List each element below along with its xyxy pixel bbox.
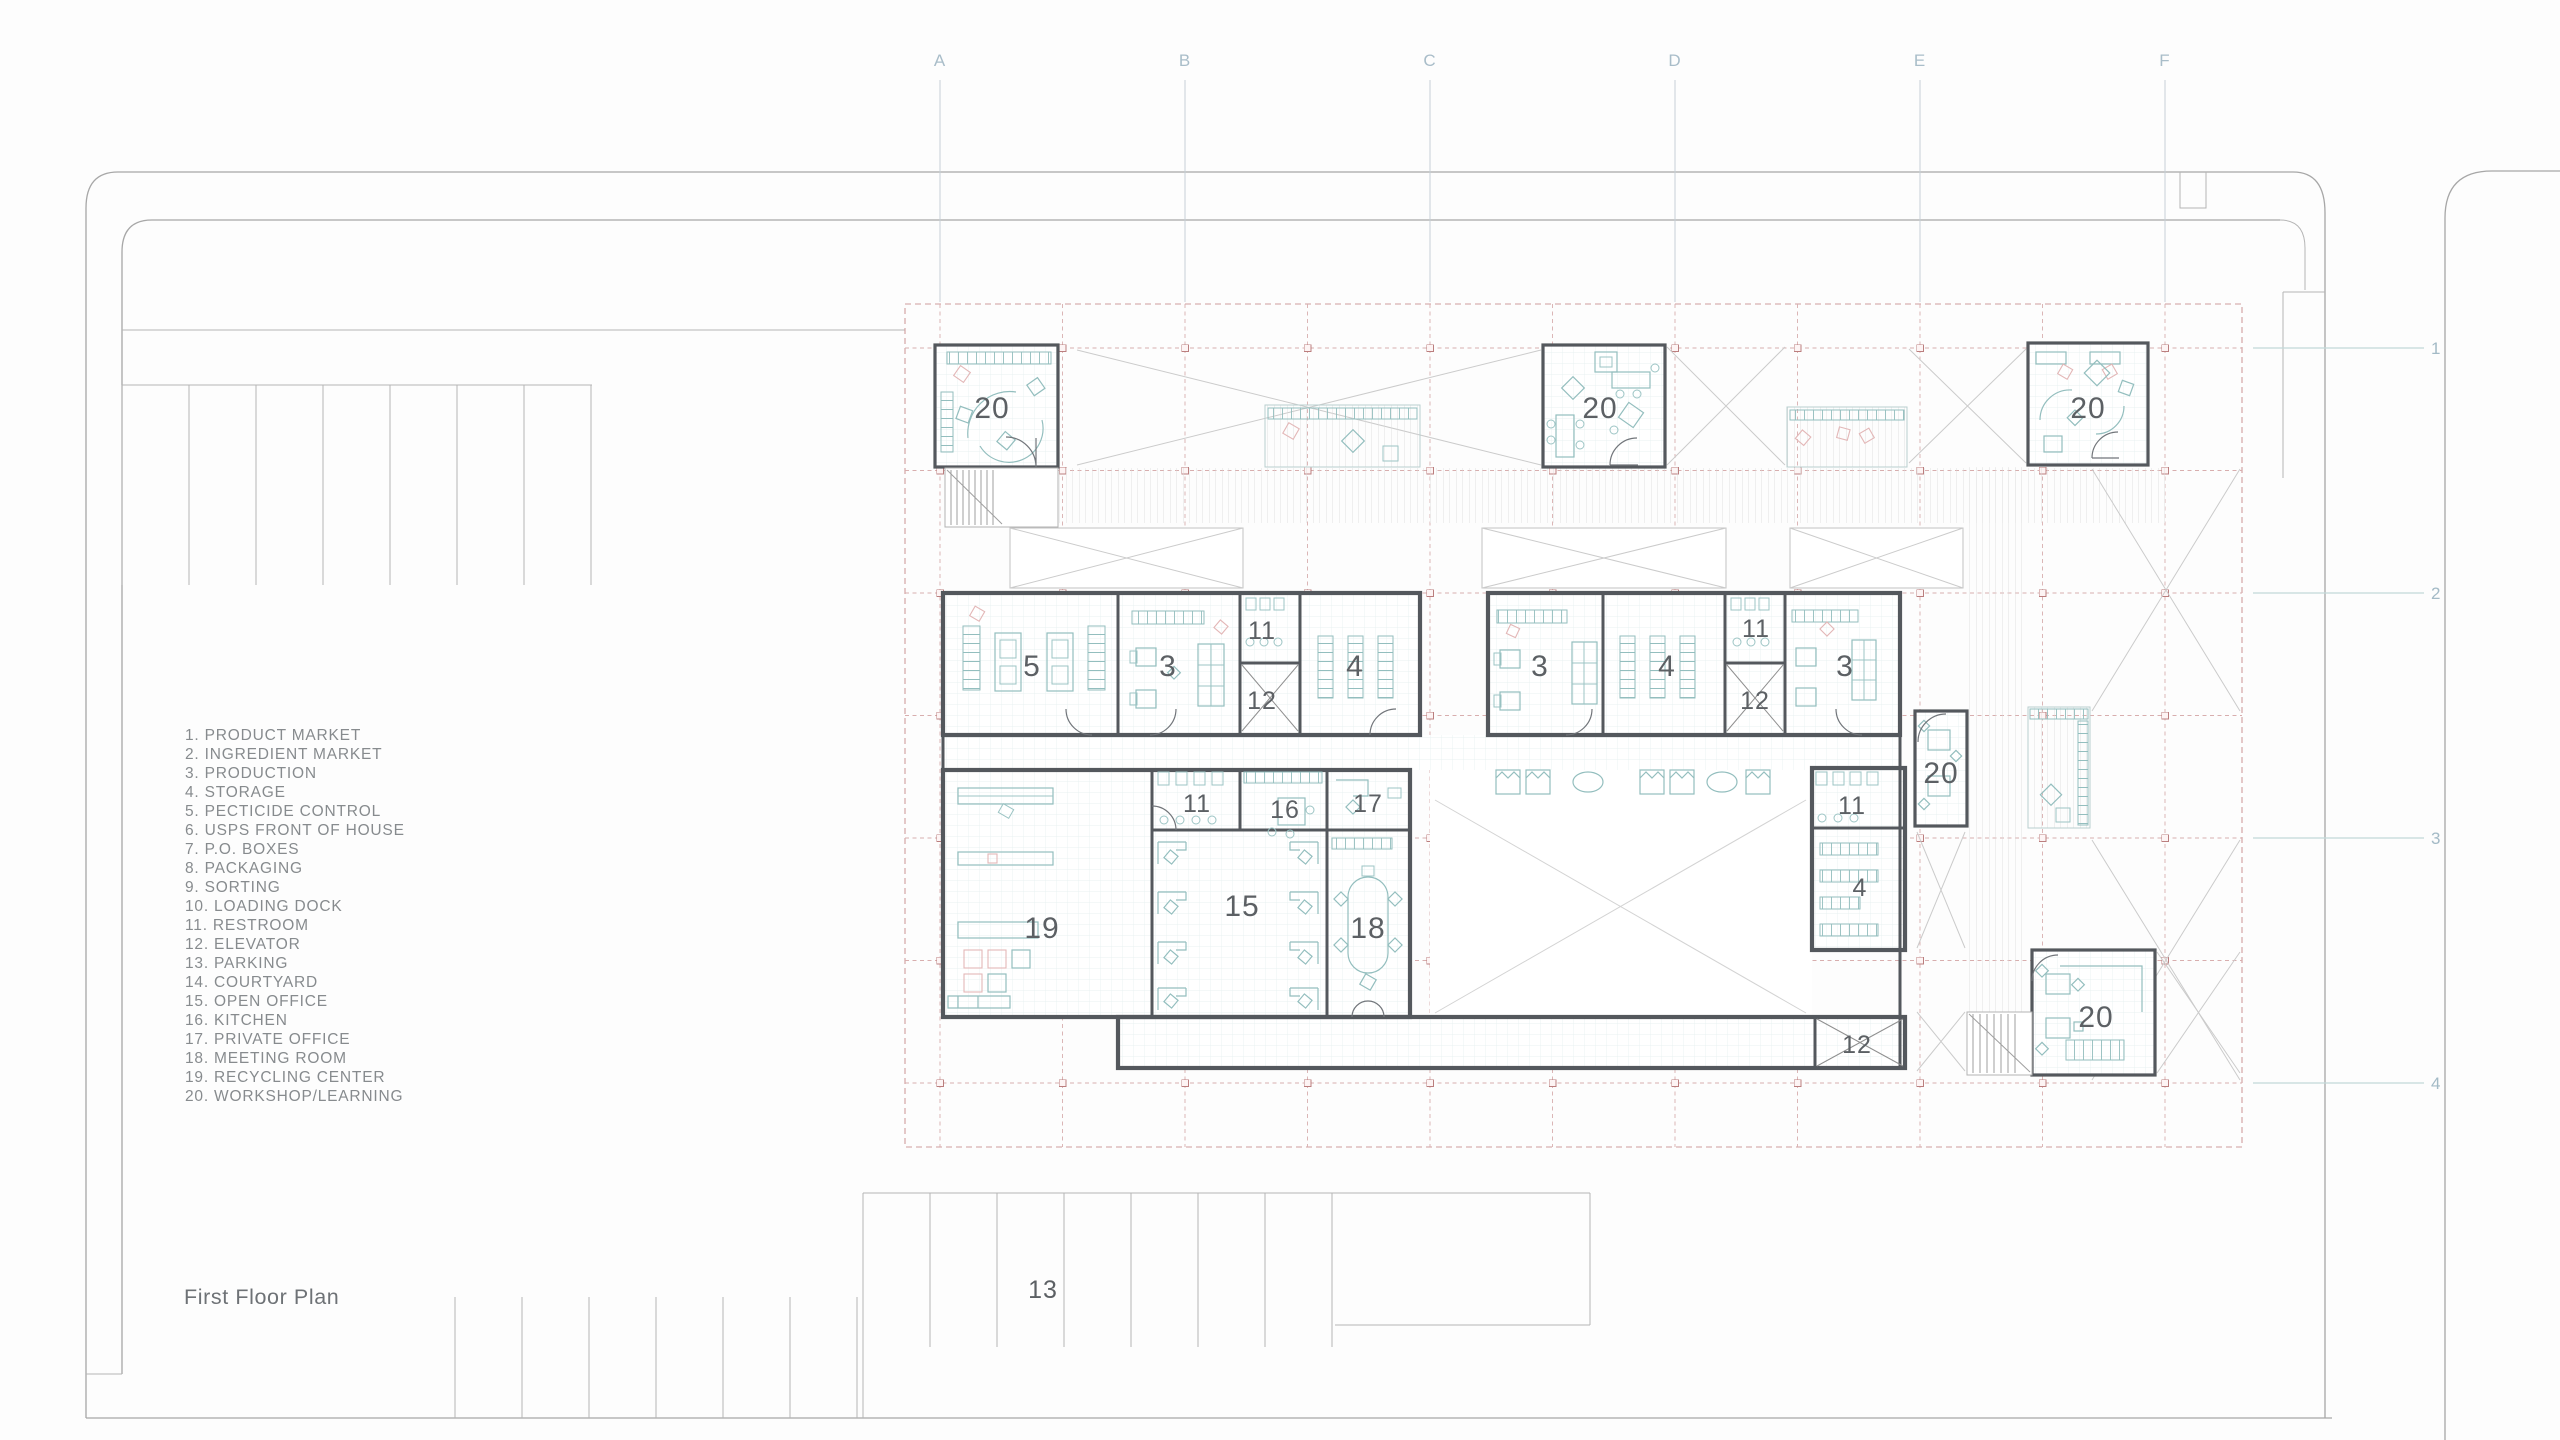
legend-item: 15. OPEN OFFICE xyxy=(185,993,328,1010)
parking-lot-bottom xyxy=(455,1193,1590,1418)
room-label: 20 xyxy=(2078,1001,2113,1034)
room-label: 11 xyxy=(1183,790,1211,818)
legend-item: 9. SORTING xyxy=(185,879,281,896)
room-label: 3 xyxy=(1836,650,1854,683)
legend-item: 6. USPS FRONT OF HOUSE xyxy=(185,822,405,839)
grid-row-label: 2 xyxy=(2431,584,2441,603)
room-label: 3 xyxy=(1531,650,1549,683)
legend-item: 11. RESTROOM xyxy=(185,917,309,934)
room-label: 11 xyxy=(1742,615,1770,643)
legend: 1. PRODUCT MARKET 2. INGREDIENT MARKET 3… xyxy=(185,727,405,1105)
legend-item: 13. PARKING xyxy=(185,955,288,972)
room-label: 17 xyxy=(1353,790,1383,818)
legend-item: 20. WORKSHOP/LEARNING xyxy=(185,1088,403,1105)
legend-item: 19. RECYCLING CENTER xyxy=(185,1069,385,1086)
room-label: 18 xyxy=(1350,912,1385,945)
parking-label: 13 xyxy=(1028,1276,1058,1304)
grid-row-label: 3 xyxy=(2431,829,2441,848)
room-label: 5 xyxy=(1023,650,1041,683)
grid-row-label: 1 xyxy=(2431,339,2441,358)
grid-col-label: B xyxy=(1179,51,1191,70)
room-label: 4 xyxy=(1346,650,1364,683)
stair-bottom-right xyxy=(1967,1012,2032,1075)
room-label: 20 xyxy=(1582,392,1617,425)
legend-item: 14. COURTYARD xyxy=(185,974,318,991)
courtyard xyxy=(1430,768,1812,1017)
room-label: 12 xyxy=(1842,1031,1872,1059)
room-label: 19 xyxy=(1024,912,1059,945)
legend-item: 7. P.O. BOXES xyxy=(185,841,299,858)
legend-item: 4. STORAGE xyxy=(185,784,286,801)
legend-item: 18. MEETING ROOM xyxy=(185,1050,347,1067)
grid-column-labels: A B C D E F xyxy=(934,51,2171,70)
grid-col-label: E xyxy=(1914,51,1926,70)
legend-item: 3. PRODUCTION xyxy=(185,765,317,782)
sheet-title: First Floor Plan xyxy=(184,1285,339,1309)
legend-item: 17. PRIVATE OFFICE xyxy=(185,1031,350,1048)
floor-plan-sheet: A B C D E F 1 2 3 4 20 20 20 20 20 5 3 1… xyxy=(0,0,2560,1440)
room-label: 12 xyxy=(1247,687,1277,715)
legend-item: 2. INGREDIENT MARKET xyxy=(185,746,382,763)
grid-col-label: D xyxy=(1668,51,1681,70)
room-label: 15 xyxy=(1224,890,1259,923)
grid-column-stems xyxy=(940,80,2165,302)
room-label: 12 xyxy=(1740,687,1770,715)
room-label: 11 xyxy=(1838,792,1866,820)
grid-col-label: A xyxy=(934,51,946,70)
legend-item: 1. PRODUCT MARKET xyxy=(185,727,361,744)
legend-item: 16. KITCHEN xyxy=(185,1012,288,1029)
legend-item: 8. PACKAGING xyxy=(185,860,303,877)
market-stall-platform-east xyxy=(2028,707,2090,828)
legend-item: 5. PECTICIDE CONTROL xyxy=(185,803,381,820)
room-label: 4 xyxy=(1658,650,1676,683)
market-stall-platform-top-right xyxy=(1787,407,1907,467)
room-label: 11 xyxy=(1248,617,1276,645)
grid-col-label: F xyxy=(2159,51,2170,70)
grid-row-labels: 1 2 3 4 xyxy=(2431,339,2441,1093)
legend-item: 10. LOADING DOCK xyxy=(185,898,343,915)
plan-drawing: A B C D E F 1 2 3 4 20 20 20 20 20 5 3 1… xyxy=(0,0,2560,1440)
room-label: 20 xyxy=(974,392,1009,425)
grid-row-label: 4 xyxy=(2431,1074,2441,1093)
grid-row-leaders xyxy=(2253,348,2424,1083)
parking-lot-top-left xyxy=(122,385,592,585)
legend-item: 12. ELEVATOR xyxy=(185,936,301,953)
room-label: 3 xyxy=(1159,650,1177,683)
canopy-skylight-panels xyxy=(1010,528,1963,588)
grid-col-label: C xyxy=(1423,51,1436,70)
room-label: 20 xyxy=(2070,392,2105,425)
stair-top-left xyxy=(945,468,1058,527)
market-stall-platform-top xyxy=(1265,405,1420,467)
room-label: 4 xyxy=(1853,874,1868,902)
room-label: 16 xyxy=(1270,796,1300,824)
room-label: 20 xyxy=(1923,757,1958,790)
